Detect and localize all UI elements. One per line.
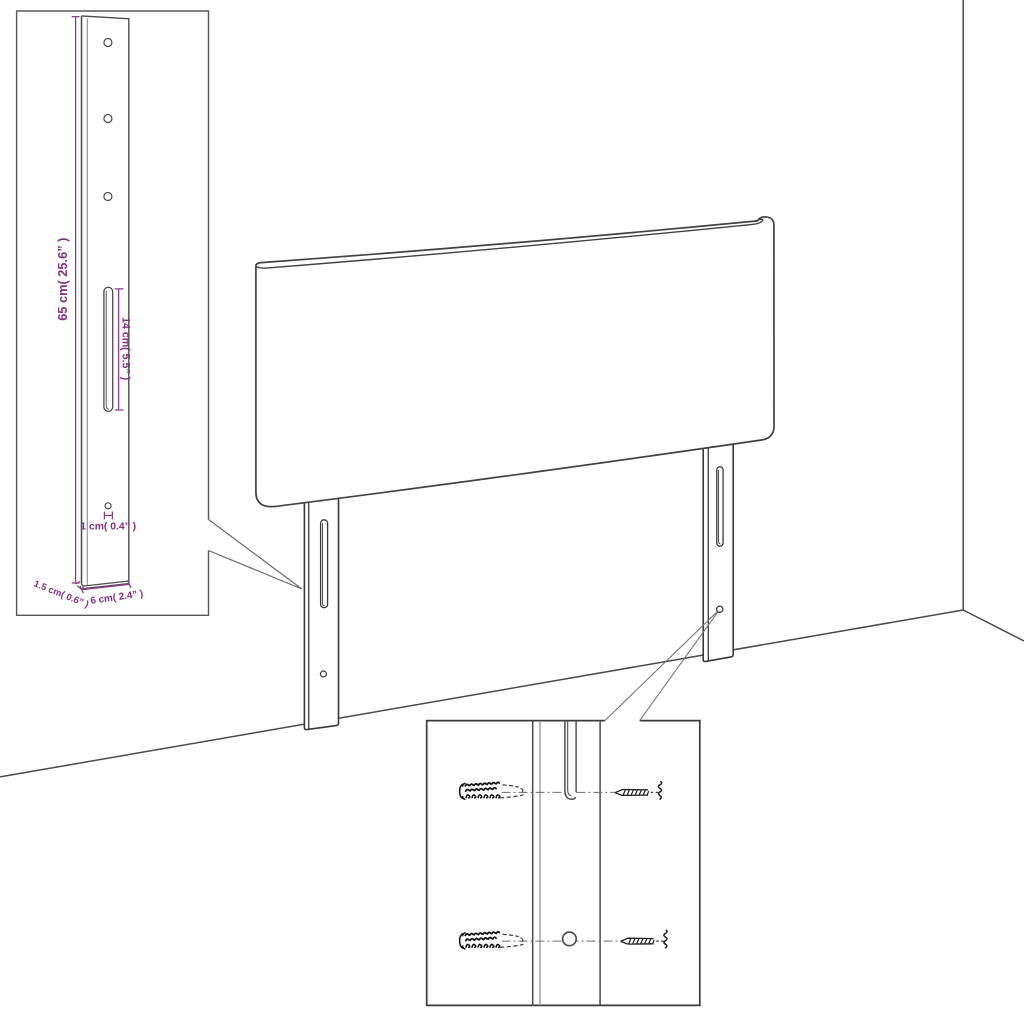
svg-text:1 cm( 0.4” ): 1 cm( 0.4” ): [80, 521, 136, 532]
svg-text:65 cm( 25.6” ): 65 cm( 25.6” ): [55, 238, 70, 321]
svg-text:14 cm( 5.5” ): 14 cm( 5.5” ): [119, 317, 131, 380]
